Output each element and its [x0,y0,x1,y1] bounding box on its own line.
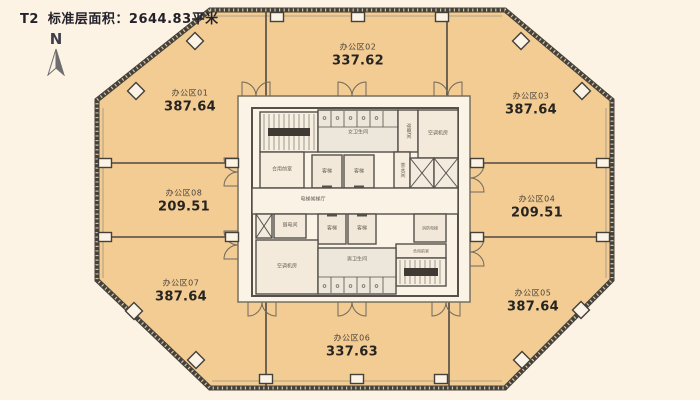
room-label: 客梯 [327,227,337,232]
zone-name: 办公区07 [155,278,207,289]
zone-area: 209.51 [158,200,210,215]
zone-name: 办公区03 [505,91,557,102]
floor-plan-page: T2标准层面积：2644.83平米 N 办公区01387.64办公区02337.… [0,0,700,400]
room-label: 弱电间 [282,224,297,229]
zone-area: 387.64 [164,100,216,115]
column-square [226,233,239,242]
core-room [252,188,458,214]
stair-handrail [404,268,438,276]
room-label: 强电间 [406,124,411,139]
zone-label-07: 办公区07387.64 [155,278,207,305]
room-label: 客梯 [357,227,367,232]
zone-name: 办公区06 [326,333,378,344]
tower-name: T2 [20,12,39,27]
north-arrow-icon [47,48,65,76]
zone-label-06: 办公区06337.63 [326,333,378,360]
room-label: 女卫生间 [348,131,368,136]
zone-name: 办公区02 [332,42,384,53]
zone-area: 337.63 [326,345,378,360]
column-square [597,233,610,242]
room-label: 空调机房 [428,132,448,137]
column-square [99,233,112,242]
zone-area: 337.62 [332,54,384,69]
room-label: 合用前室 [413,249,429,254]
column-square [597,159,610,168]
zone-area: 387.64 [505,103,557,118]
zone-name: 办公区01 [164,88,216,99]
column-square [352,13,365,22]
zone-label-01: 办公区01387.64 [164,88,216,115]
north-label: N [42,32,70,47]
column-square [99,159,112,168]
zone-label-08: 办公区08209.51 [158,188,210,215]
stair-handrail [268,128,310,136]
zone-label-04: 办公区04209.51 [511,194,563,221]
column-square [436,13,449,22]
column-square [435,375,448,384]
room-label: 消防电梯 [422,226,438,231]
floor-area-label: 标准层面积：2644.83平米 [48,12,219,27]
column-square [471,233,484,242]
zone-name: 办公区08 [158,188,210,199]
room-label: 电梯候梯厅 [300,198,325,203]
north-compass: N [42,32,70,76]
room-label: 男卫生间 [347,258,367,263]
zone-area: 209.51 [511,206,563,221]
zone-label-05: 办公区05387.64 [507,288,559,315]
column-square [351,375,364,384]
page-title: T2标准层面积：2644.83平米 [20,8,219,27]
zone-name: 办公区04 [511,194,563,205]
zone-label-02: 办公区02337.62 [332,42,384,69]
zone-name: 办公区05 [507,288,559,299]
column-square [226,159,239,168]
room-label: 空调机房 [277,265,297,270]
room-label: 茶水间 [400,163,405,178]
column-square [271,13,284,22]
zone-area: 387.64 [507,300,559,315]
room-label: 客梯 [322,169,332,174]
zone-area: 387.64 [155,290,207,305]
column-square [471,159,484,168]
column-square [260,375,273,384]
zone-label-03: 办公区03387.64 [505,91,557,118]
room-label: 合用前室 [272,168,292,173]
room-label: 客梯 [354,169,364,174]
